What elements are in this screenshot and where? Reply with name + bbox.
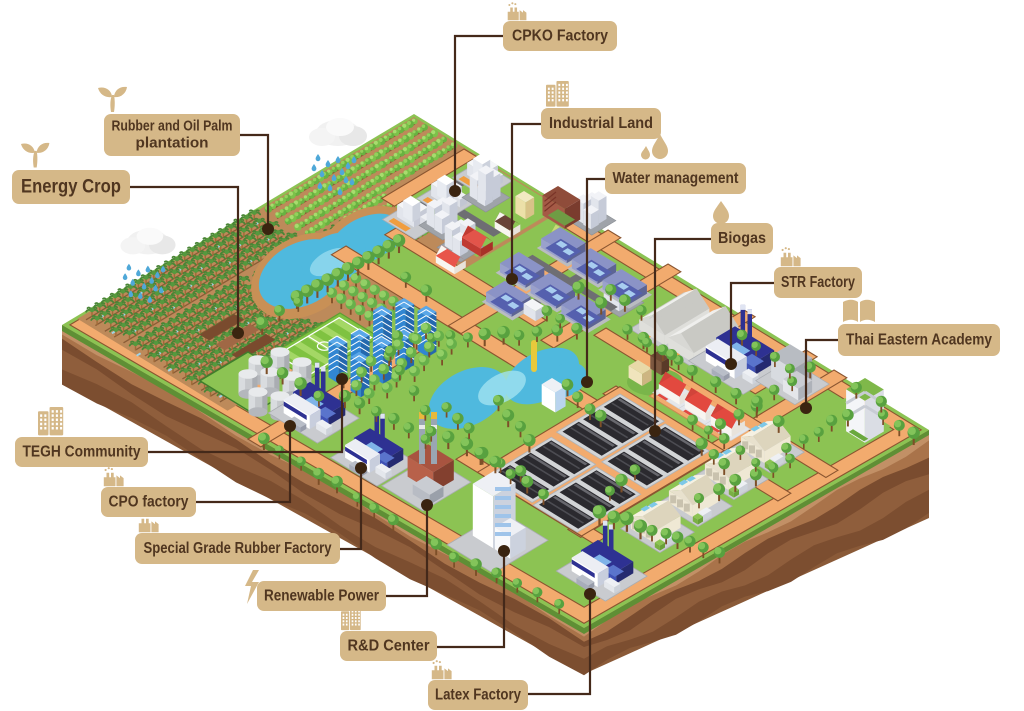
svg-text:Latex Factory: Latex Factory [435,687,521,704]
svg-text:Biogas: Biogas [718,230,766,247]
svg-text:TEGH Community: TEGH Community [23,444,141,461]
svg-text:Special Grade Rubber Factory: Special Grade Rubber Factory [144,540,332,557]
svg-text:Rubber and Oil Palm: Rubber and Oil Palm [112,119,233,135]
svg-text:Water management: Water management [613,170,740,187]
svg-text:CPKO Factory: CPKO Factory [512,28,608,45]
svg-text:R&D Center: R&D Center [348,638,430,655]
svg-text:plantation: plantation [136,136,209,152]
svg-text:Thai Eastern Academy: Thai Eastern Academy [846,332,992,349]
svg-text:Industrial Land: Industrial Land [549,115,653,132]
svg-text:Renewable Power: Renewable Power [264,588,379,605]
svg-text:Energy Crop: Energy Crop [21,177,121,198]
svg-text:STR Factory: STR Factory [781,274,855,291]
svg-text:CPO factory: CPO factory [109,494,189,511]
